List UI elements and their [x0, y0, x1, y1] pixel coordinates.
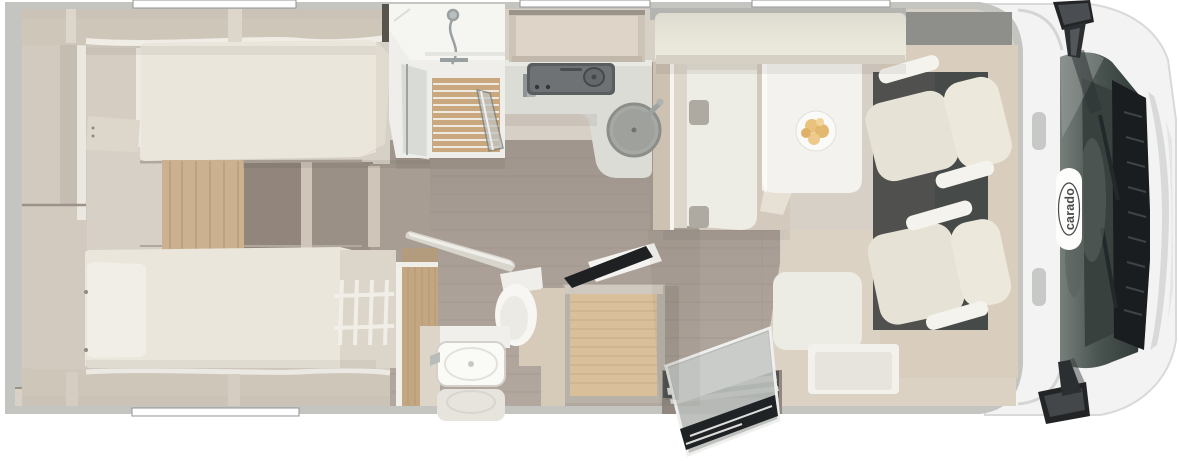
svg-text:carado: carado	[1063, 188, 1077, 230]
